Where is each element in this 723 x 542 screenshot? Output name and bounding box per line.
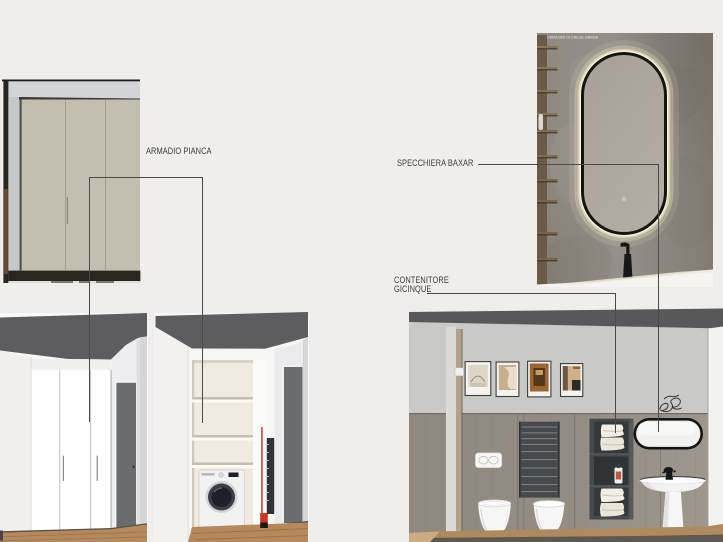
svg-text:CERA MIX DI CALCE GRIGIA: CERA MIX DI CALCE GRIGIA <box>547 35 599 39</box>
